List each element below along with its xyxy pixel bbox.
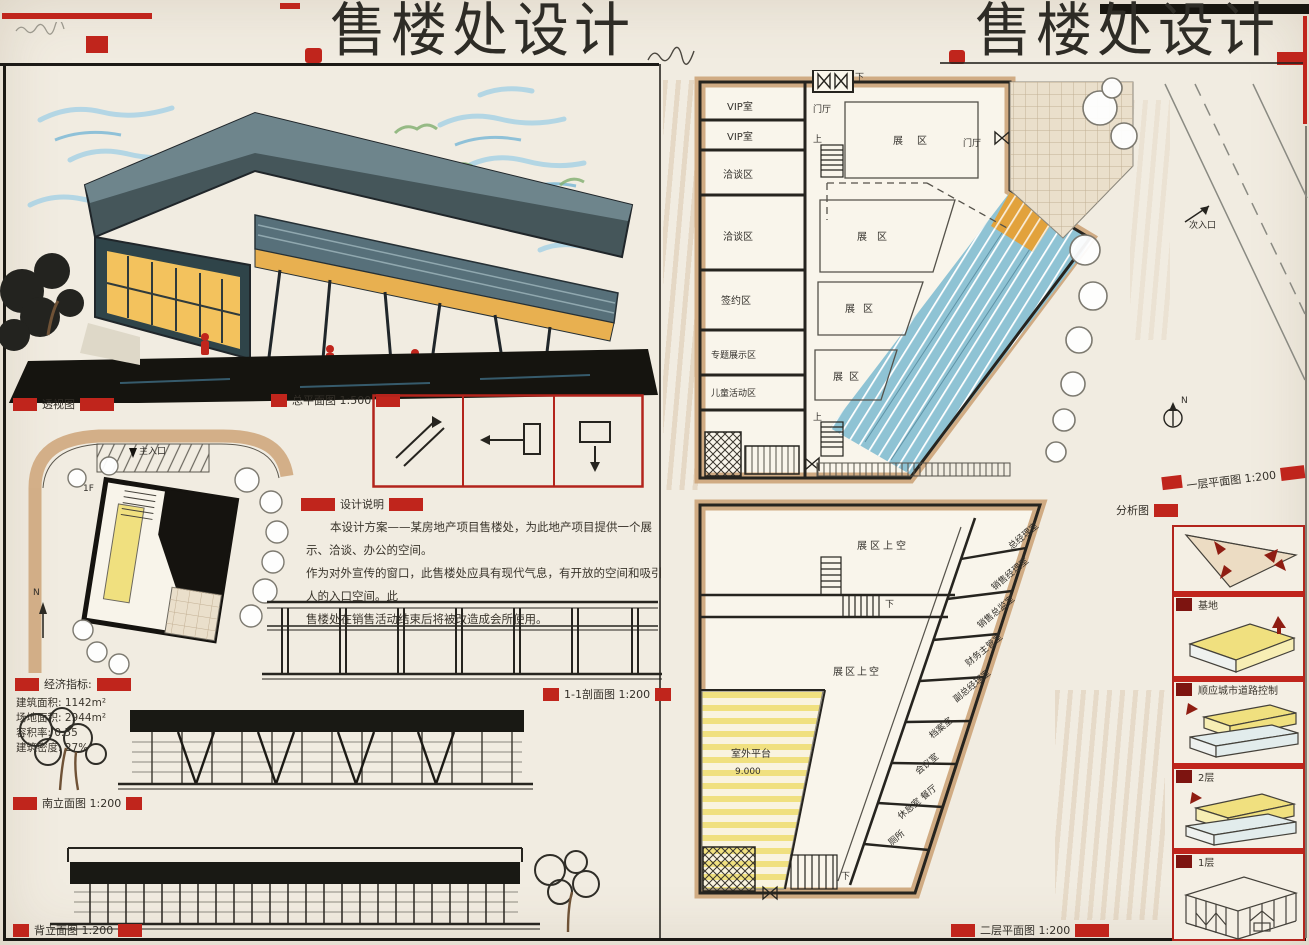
dark-red-tab [1176, 598, 1192, 611]
floor1-room-label: 洽谈区 [723, 166, 753, 181]
analysis-caption-text: 基地 [1198, 597, 1218, 612]
floor2-terrace-level: 9.000 [735, 767, 761, 777]
floor1-zone-label: 展区 [845, 300, 881, 315]
floor1-zone-label: 展区 [893, 132, 941, 147]
floor2-down-label: 下 [885, 597, 894, 610]
first-floor-plan: VIP室 VIP室 洽谈区 洽谈区 签约区 专题展示区 儿童活动区 展区 展区 … [665, 70, 1309, 498]
red-chip [1154, 504, 1178, 517]
tree-sketch [8, 694, 123, 799]
label-economic: 经济指标: [10, 676, 136, 692]
red-chip [13, 398, 37, 411]
pencil-note-scribble [14, 22, 66, 36]
floor1-lobby-label: 门厅 [813, 102, 831, 115]
first-floor-plan-drawing [665, 70, 1309, 498]
floor2-down-label: 下 [841, 869, 850, 882]
red-chip [97, 678, 131, 691]
floor1-secondary-entrance-label: 次入口 [1189, 218, 1216, 231]
site-floor-tag: 1F [83, 484, 94, 494]
label-south-elevation: 南立面图 1:200 [8, 795, 147, 811]
perspective-label-text: 透视图 [42, 396, 75, 412]
red-chip [13, 924, 29, 937]
red-chip [1075, 924, 1109, 937]
analysis-level1-diagram [1174, 784, 1303, 848]
title-underline-right [940, 62, 1305, 64]
tree-sketch [520, 840, 615, 940]
analysis-caption-site: 基地 [1174, 597, 1303, 612]
bottom-border [3, 938, 1306, 941]
floor2-terrace-label: 室外平台 [731, 745, 771, 760]
floor1-room-label: 专题展示区 [711, 348, 756, 361]
detail-diagram-box [372, 394, 644, 488]
floor1-room-label: VIP室 [727, 98, 753, 113]
second-floor-label-text: 二层平面图 1:200 [980, 922, 1070, 938]
presentation-board: 售楼处设计 售楼处设计 [0, 0, 1309, 945]
site-north-label: N [33, 588, 40, 598]
floor1-room-label: 签约区 [721, 292, 751, 307]
red-chip [15, 678, 39, 691]
label-perspective: 透视图 [8, 396, 119, 412]
label-back-elevation: 背立面图 1:200 [8, 922, 147, 938]
analysis-caption-text: 2层 [1198, 769, 1214, 784]
analysis-label-text: 分析图 [1116, 502, 1149, 518]
back-elevation-label-text: 背立面图 1:200 [34, 922, 113, 938]
analysis-caption-text: 顺应城市道路控制 [1198, 682, 1278, 697]
analysis-caption-road: 顺应城市道路控制 [1174, 682, 1303, 697]
dark-red-tab [1176, 770, 1192, 783]
label-design-notes: 设计说明 [296, 496, 428, 512]
analysis-caption-level1: 1层 [1174, 854, 1303, 869]
red-chip [118, 924, 142, 937]
section-label-text: 1-1剖面图 1:200 [564, 686, 650, 702]
floor2-void-label: 展区上空 [857, 537, 909, 552]
label-section: 1-1剖面图 1:200 [538, 686, 676, 702]
red-chip [271, 394, 287, 407]
back-elevation-drawing [50, 836, 540, 936]
section-drawing [262, 586, 662, 686]
title-red-dash [280, 3, 300, 9]
title-red-square-left [86, 36, 108, 53]
floor1-down-label: 下 [855, 70, 864, 83]
site-plan-label-text: 总平面图 1:500 [292, 392, 371, 408]
red-chip [13, 797, 37, 810]
floor1-north-label: N [1181, 396, 1188, 406]
board-title-right-text: 售楼处设计 [975, 0, 1280, 65]
analysis-caption-level2: 2层 [1174, 769, 1303, 784]
board-title-right: 售楼处设计 [975, 0, 1280, 65]
title-red-square-left2 [305, 48, 322, 63]
south-elevation-label-text: 南立面图 1:200 [42, 795, 121, 811]
red-chip [1280, 465, 1305, 481]
floor1-zone-label: 展区 [857, 228, 897, 243]
floor1-zone-label: 展区 [833, 368, 865, 383]
floor1-lobby-label: 门厅 [963, 136, 981, 149]
analysis-caption-text: 1层 [1198, 854, 1214, 869]
top-left-red-rule [2, 13, 152, 19]
red-chip [389, 498, 423, 511]
floor1-room-label: 儿童活动区 [711, 386, 756, 399]
analysis-structure-diagram [1174, 869, 1303, 943]
floor2-void-label: 展区上空 [833, 663, 881, 678]
red-chip [301, 498, 335, 511]
analysis-massing-road-diagram [1174, 612, 1303, 676]
perspective-rendering [0, 65, 660, 403]
board-title-left-text: 售楼处设计 [330, 0, 635, 65]
floor1-up-label: 上 [813, 410, 822, 423]
label-second-floor-plan: 二层平面图 1:200 [946, 922, 1114, 938]
board-title-left: 售楼处设计 [330, 0, 635, 65]
analysis-level2-diagram [1174, 697, 1303, 763]
red-chip [1161, 475, 1182, 490]
economic-title-text: 经济指标: [44, 676, 92, 692]
design-notes-line1: 本设计方案——某房地产项目售楼处，为此地产项目提供一个展示、洽谈、办公的空间。 [306, 516, 668, 562]
floor1-room-label: VIP室 [727, 128, 753, 143]
analysis-site-diagram [1174, 527, 1303, 591]
dark-red-tab [1176, 855, 1192, 868]
red-chip [951, 924, 975, 937]
floor1-room-label: 洽谈区 [723, 228, 753, 243]
signature-scribble [644, 44, 700, 66]
red-chip [543, 688, 559, 701]
red-chip [126, 797, 142, 810]
design-notes-label-text: 设计说明 [340, 496, 384, 512]
label-analysis: 分析图 [1116, 502, 1183, 518]
site-main-entrance-label: 主入口 [139, 444, 166, 457]
analysis-strip: 基地 顺应城市道路控制 2层 [1172, 525, 1305, 941]
south-elevation-drawing [118, 698, 533, 798]
red-chip [80, 398, 114, 411]
floor1-up-label: 上 [813, 132, 822, 145]
dark-red-tab [1176, 683, 1192, 696]
